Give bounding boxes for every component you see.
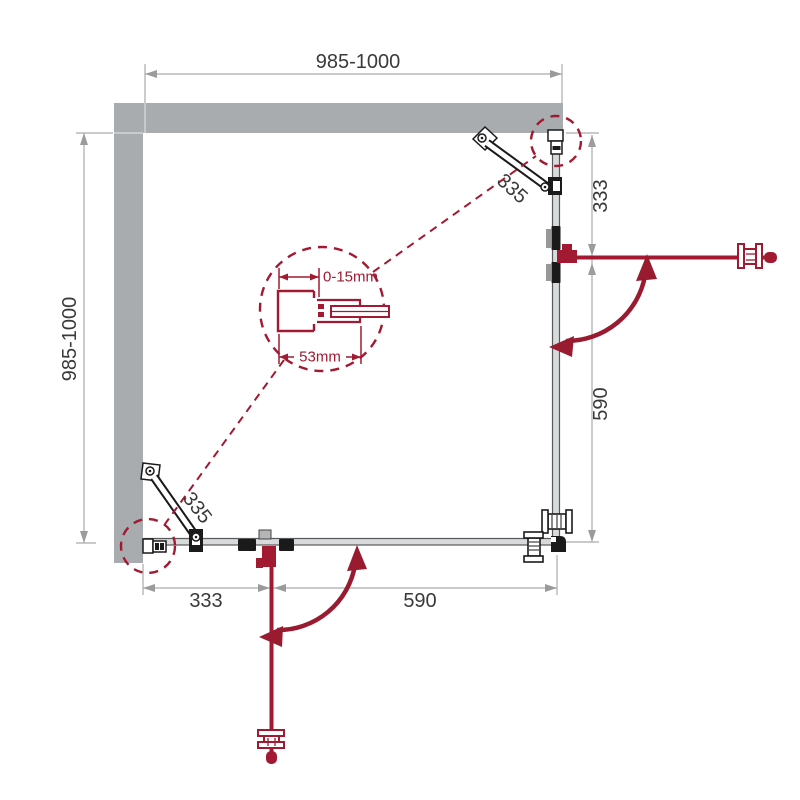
top-wall (114, 103, 563, 133)
left-wall (114, 133, 143, 563)
corner-elbow-joint (551, 536, 566, 552)
arc-arrowhead-up (347, 545, 367, 571)
dimension-lines (76, 64, 599, 595)
dim-label-bottom-fixed-segment: 333 (189, 590, 222, 612)
detail-label-adjustment-range: 0-15mm (323, 269, 378, 286)
dim-label-bottom-door-segment: 590 (403, 590, 436, 612)
dim-label-top-width: 985-1000 (316, 51, 401, 73)
bottom-glass-panel (144, 539, 558, 546)
shower-enclosure-plan-drawing: 985-1000 985-1000 333 590 333 590 335 33… (0, 0, 800, 800)
dimension-arrowheads (80, 70, 596, 592)
dim-label-left-depth: 985-1000 (59, 297, 81, 382)
swing-arc-right-door (549, 254, 657, 357)
wall-profile-channel (278, 291, 314, 331)
wall-bracket-bottom-left (143, 539, 166, 553)
knob-right-door-closed (542, 510, 572, 533)
bottom-door-open (256, 546, 284, 764)
dim-label-right-door-segment: 590 (590, 387, 612, 420)
right-door-pivot-block (557, 250, 577, 263)
right-door-knob (738, 244, 762, 268)
glass-panels (144, 133, 560, 546)
bottom-door-pivot-block (262, 546, 276, 567)
walls (114, 103, 563, 563)
wall-bracket-top-right (548, 130, 563, 154)
bottom-door-knob (258, 730, 284, 748)
right-door-end-cap (764, 252, 777, 263)
bottom-door-end-cap (266, 751, 277, 764)
knob-bottom-door-closed (524, 532, 543, 562)
detail-label-profile-width: 53mm (299, 349, 341, 366)
dim-label-right-fixed-segment: 333 (590, 179, 612, 212)
technical-drawing-canvas: 985-1000 985-1000 333 590 333 590 335 33… (0, 0, 800, 800)
